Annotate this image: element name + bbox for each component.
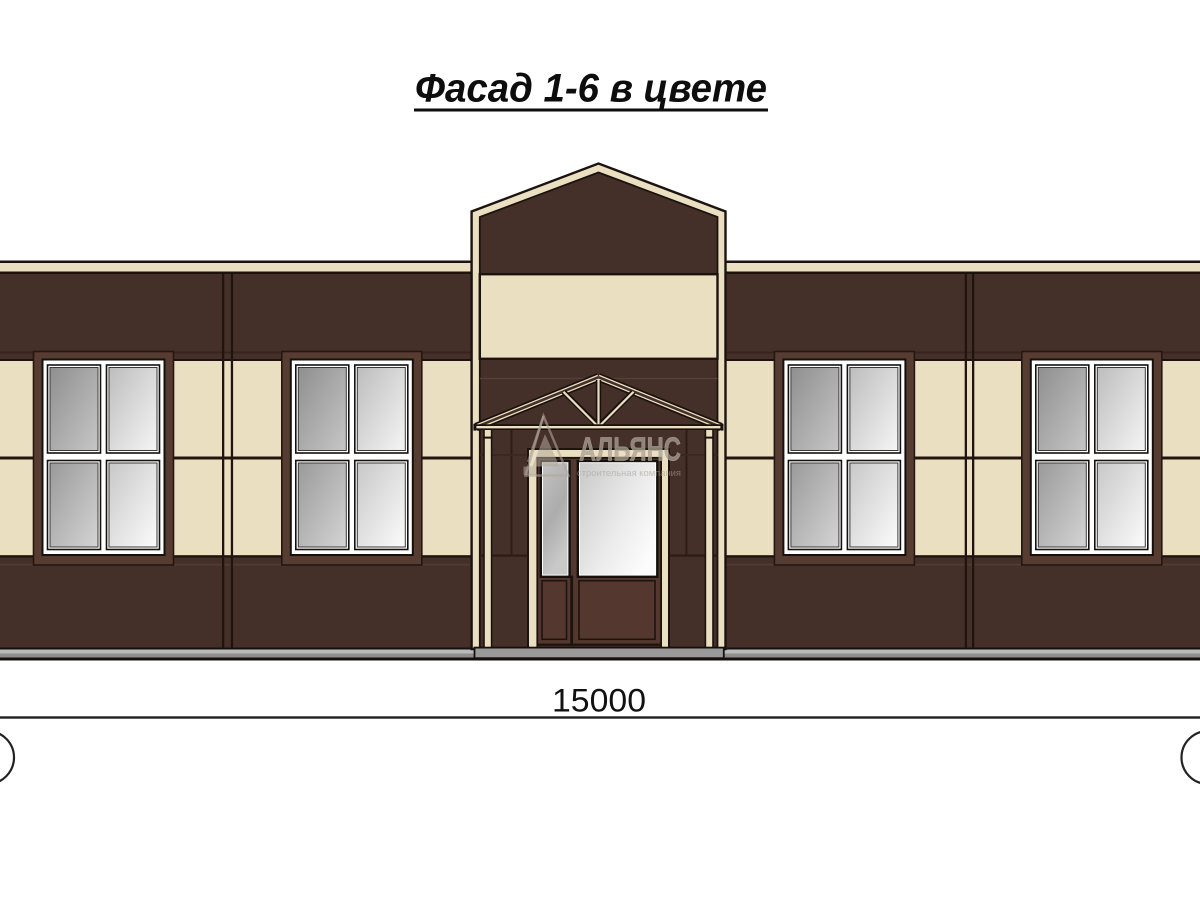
svg-text:АЛЬЯНС: АЛЬЯНС xyxy=(579,431,681,468)
svg-text:15000: 15000 xyxy=(552,682,646,718)
svg-text:Фасад 1-6 в цвете: Фасад 1-6 в цвете xyxy=(415,67,767,111)
svg-text:строительная компания: строительная компания xyxy=(577,468,681,478)
